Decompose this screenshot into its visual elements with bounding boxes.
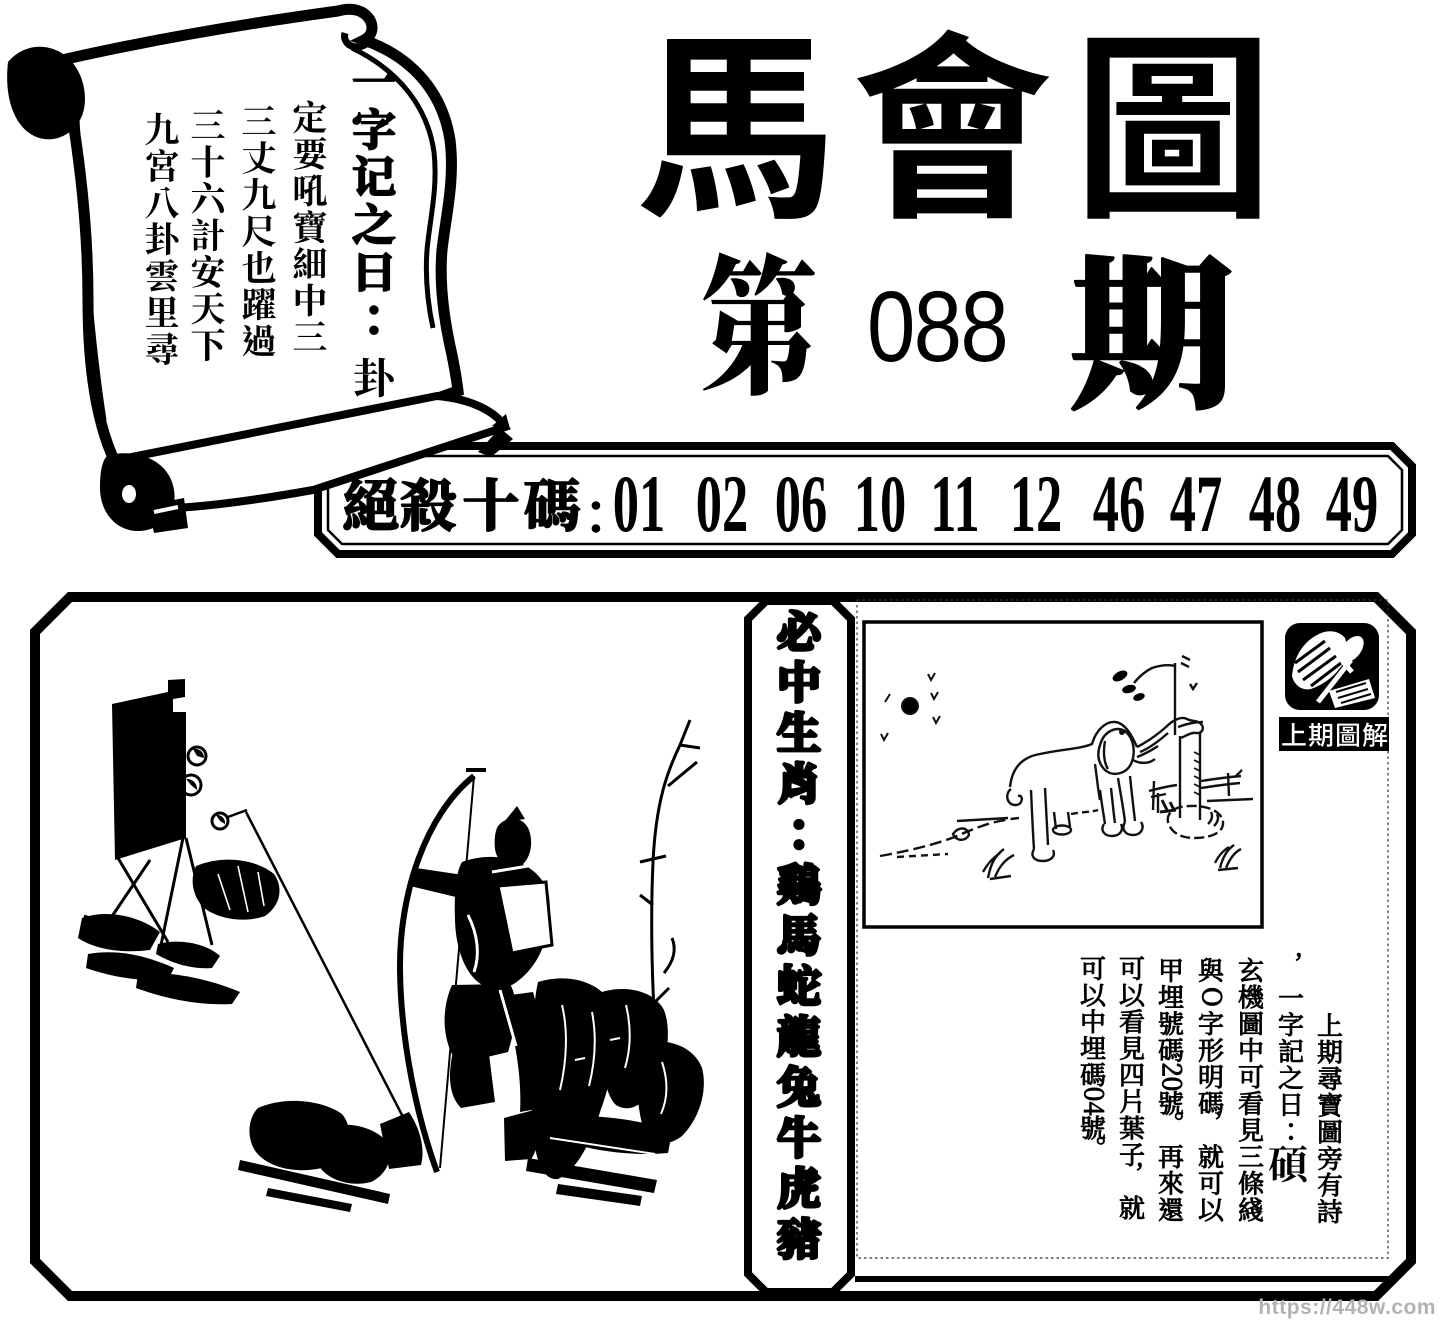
svg-text:10: 10 [854, 458, 906, 549]
svg-text:06: 06 [775, 458, 827, 549]
svg-text:https://448w.com: https://448w.com [1258, 1296, 1436, 1319]
svg-text:48: 48 [1249, 458, 1301, 549]
svg-text:02: 02 [696, 458, 748, 549]
svg-text:088: 088 [867, 270, 1007, 382]
svg-text:01: 01 [613, 458, 665, 549]
svg-text:49: 49 [1326, 458, 1378, 549]
svg-text:12: 12 [1010, 458, 1062, 549]
svg-text:46: 46 [1093, 458, 1145, 549]
svg-text:11: 11 [930, 458, 980, 549]
svg-text:47: 47 [1170, 458, 1222, 549]
